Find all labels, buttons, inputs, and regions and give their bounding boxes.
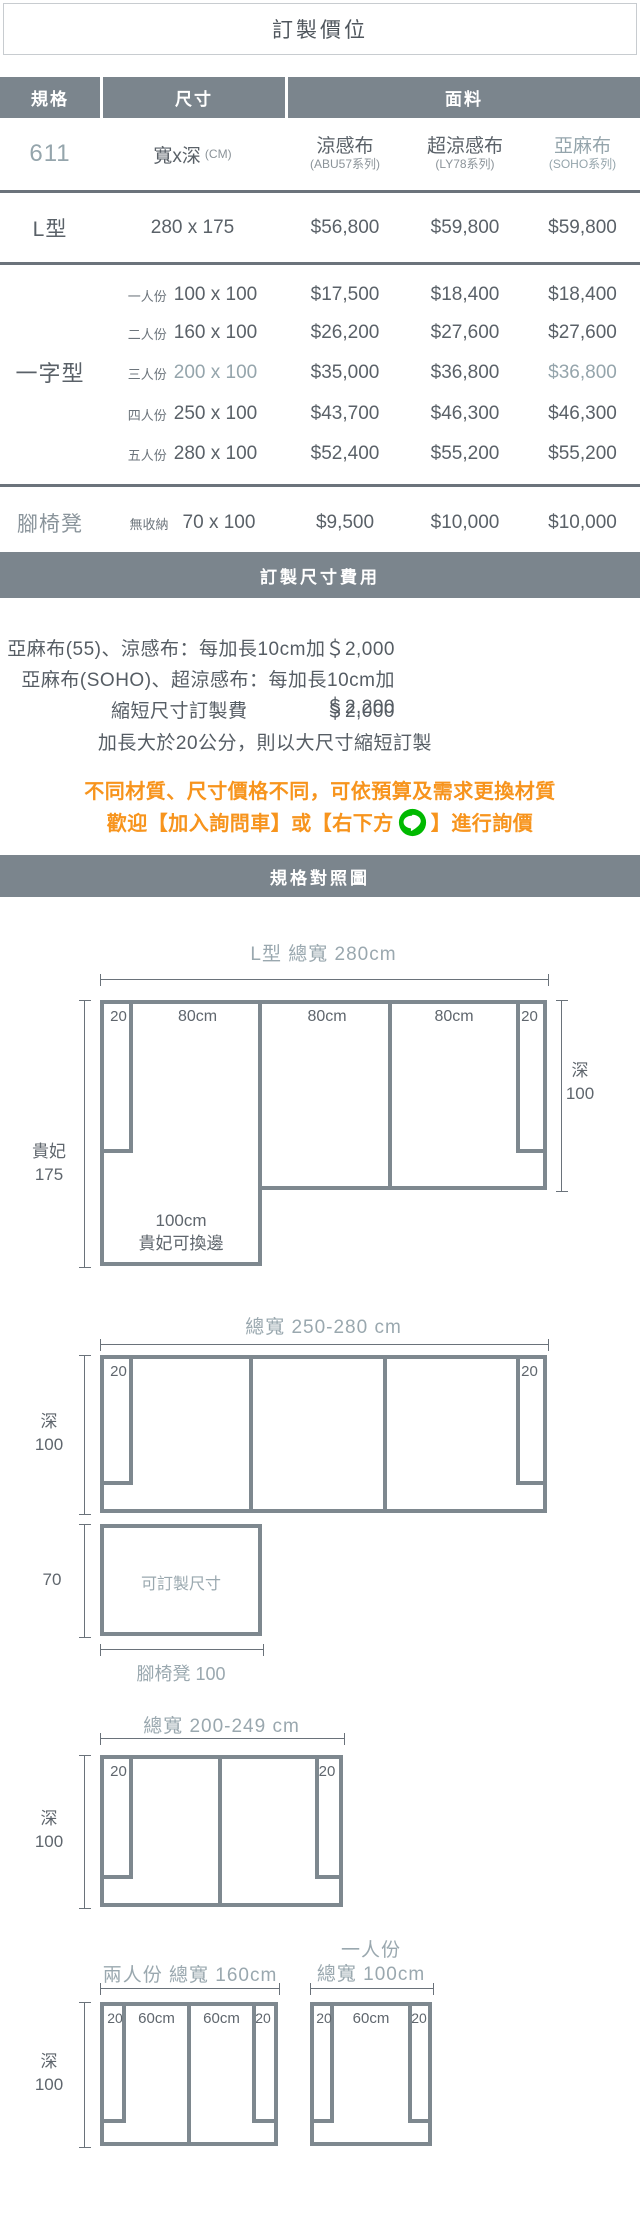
model-number: 611 xyxy=(0,118,100,190)
mid-depth-dimension xyxy=(79,1755,91,1909)
wide-depth-label: 深 xyxy=(25,1411,73,1433)
two-seat1-label: 60cm xyxy=(126,2010,187,2027)
l-right-arm-label: 20 xyxy=(516,1008,543,1025)
l-chaise-note-label: 貴妃可換邊 xyxy=(100,1233,262,1255)
price-linen: $10,000 xyxy=(525,500,640,546)
mid-right-arm-label: 20 xyxy=(315,1763,339,1780)
fee-band: 訂製尺寸費用 xyxy=(0,552,640,598)
one-seat-title-line2: 總寬 100cm xyxy=(296,1959,446,1986)
row-size: 二人份160 x 100 xyxy=(100,314,285,352)
one-seat-width-dimension xyxy=(310,1983,434,1995)
two-seat-left-arm-label: 20 xyxy=(103,2010,127,2026)
l-chaise-width-label: 100cm xyxy=(100,1210,262,1232)
price-cool: $35,000 xyxy=(285,354,405,392)
one-seat-left-arm-label: 20 xyxy=(312,2010,336,2026)
l-seat1-label: 80cm xyxy=(133,1008,262,1026)
l-seat-divider xyxy=(388,1004,392,1186)
l-seat2-label: 80cm xyxy=(266,1008,388,1026)
price-super-cool: $10,000 xyxy=(405,500,525,546)
fee-note: 加長大於20公分，則以大尺寸縮短訂製 xyxy=(0,728,530,755)
price-cool: $43,700 xyxy=(285,395,405,433)
price-super-cool: $59,800 xyxy=(405,196,525,260)
l-diagram-title: L型 總寬 280cm xyxy=(100,939,547,966)
price-cool: $9,500 xyxy=(285,500,405,546)
divider-rule xyxy=(0,484,640,487)
mid-left-arm-label: 20 xyxy=(104,1763,133,1780)
l-chaise-label: 貴妃 xyxy=(25,1141,73,1163)
header-spec: 規格 xyxy=(0,77,100,118)
wide-depth-dimension xyxy=(79,1355,91,1515)
wide-divider-2 xyxy=(383,1359,387,1509)
fee-short-price: ＄2,000 xyxy=(325,701,395,722)
two-seat-right-arm-label: 20 xyxy=(251,2010,275,2026)
table-row-stool: 腳椅凳 無收納70 x 100 $9,500 $10,000 $10,000 xyxy=(0,500,640,546)
price-cool: $56,800 xyxy=(285,196,405,260)
fabric-super-cool: 超涼感布 (LY78系列) xyxy=(405,118,525,190)
divider-rule xyxy=(0,190,640,193)
two-seat-width-dimension xyxy=(100,1983,280,1995)
row-label: 腳椅凳 xyxy=(0,500,100,546)
table-row-4p: 四人份250 x 100 $43,700 $46,300 $46,300 xyxy=(0,395,640,433)
row-size: 一人份100 x 100 xyxy=(100,276,285,314)
two-seat-depth-dimension xyxy=(79,2002,91,2148)
price-super-cool: $46,300 xyxy=(405,395,525,433)
price-super-cool: $36,800 xyxy=(405,354,525,392)
row-size: 五人份280 x 100 xyxy=(100,435,285,473)
divider-rule xyxy=(0,262,640,265)
table-row-2p: 二人份160 x 100 $26,200 $27,600 $27,600 xyxy=(0,314,640,352)
price-linen: $27,600 xyxy=(525,314,640,352)
l-chaise-depth-value: 175 xyxy=(25,1164,73,1186)
two-seat-depth-label: 深 xyxy=(25,2051,73,2073)
row-size: 無收納70 x 100 xyxy=(100,500,285,546)
l-depth-label: 深 xyxy=(558,1060,602,1082)
fee-line-1: 亞麻布(55)、涼感布：每加長10cm加＄2,000 xyxy=(0,634,395,661)
price-super-cool: $18,400 xyxy=(405,276,525,314)
wide-width-dimension xyxy=(100,1339,549,1351)
custom-pricing-page: 訂製價位 規格 尺寸 面料 611 寬x深 (CM) 涼感布 (ABU57系列)… xyxy=(0,0,640,2236)
row-size: 三人份200 x 100 xyxy=(100,354,285,392)
stool-width-label: 腳椅凳 100 xyxy=(88,1660,274,1686)
price-linen: $46,300 xyxy=(525,395,640,433)
l-left-arm-label: 20 xyxy=(104,1008,133,1025)
wide-divider-1 xyxy=(249,1359,253,1509)
fee-line-3: 縮短尺寸訂製費＄2,000 xyxy=(0,696,395,723)
l-right-armrest xyxy=(516,1004,543,1153)
l-chaise-depth-dimension xyxy=(79,1000,91,1268)
stool-depth-value: 70 xyxy=(30,1569,74,1591)
stool-custom-label: 可訂製尺寸 xyxy=(100,1570,262,1594)
mid-width-dimension xyxy=(100,1733,345,1745)
one-seat-label: 60cm xyxy=(334,2010,408,2027)
l-depth-value: 100 xyxy=(558,1083,602,1105)
mid-depth-label: 深 xyxy=(25,1808,73,1830)
page-title: 訂製價位 xyxy=(272,14,368,44)
size-unit: 寬x深 (CM) xyxy=(100,118,285,190)
mid-divider xyxy=(218,1759,222,1903)
one-seat-right-arm-label: 20 xyxy=(407,2010,431,2026)
stool-width-dimension xyxy=(100,1644,264,1656)
row-size: 四人份250 x 100 xyxy=(100,395,285,433)
fabric-cool: 涼感布 (ABU57系列) xyxy=(285,118,405,190)
price-linen: $36,800 xyxy=(525,354,640,392)
price-linen: $59,800 xyxy=(525,196,640,260)
table-row-1p: 一人份100 x 100 $17,500 $18,400 $18,400 xyxy=(0,276,640,314)
wide-right-arm-label: 20 xyxy=(516,1363,543,1380)
l-left-armrest xyxy=(104,1004,133,1153)
stool-depth-dimension xyxy=(79,1524,91,1638)
price-super-cool: $55,200 xyxy=(405,435,525,473)
page-title-box: 訂製價位 xyxy=(3,3,637,55)
row-label: L型 xyxy=(0,196,100,260)
l-seat3-label: 80cm xyxy=(392,1008,516,1026)
table-row-l-type: L型 280 x 175 $56,800 $59,800 $59,800 xyxy=(0,196,640,260)
price-cool: $17,500 xyxy=(285,276,405,314)
header-size: 尺寸 xyxy=(103,77,285,118)
table-row-5p: 五人份280 x 100 $52,400 $55,200 $55,200 xyxy=(0,435,640,473)
compare-band: 規格對照圖 xyxy=(0,855,640,897)
price-cool: $52,400 xyxy=(285,435,405,473)
two-seat2-label: 60cm xyxy=(191,2010,252,2027)
price-cool: $26,200 xyxy=(285,314,405,352)
promo-line-1: 不同材質、尺寸價格不同，可依預算及需求更換材質 xyxy=(0,775,640,804)
wide-sofa-outline xyxy=(100,1355,547,1513)
price-linen: $55,200 xyxy=(525,435,640,473)
fee-short-label: 縮短尺寸訂製費 xyxy=(111,701,248,722)
two-seat-depth-value: 100 xyxy=(25,2074,73,2096)
price-super-cool: $27,600 xyxy=(405,314,525,352)
table-row-3p-highlight: 三人份200 x 100 $35,000 $36,800 $36,800 xyxy=(0,354,640,392)
one-seat-title-line1: 一人份 xyxy=(296,1935,446,1962)
l-width-dimension xyxy=(100,974,549,986)
row-size: 280 x 175 xyxy=(100,196,285,260)
promo-line-2: 歡迎【加入詢問車】或【右下方】進行詢價 xyxy=(0,807,640,837)
wide-left-arm-label: 20 xyxy=(104,1363,133,1380)
line-app-icon xyxy=(398,808,427,837)
table-header-band: 規格 尺寸 面料 xyxy=(0,77,640,118)
header-fabric: 面料 xyxy=(288,77,640,118)
fabric-linen: 亞麻布 (SOHO系列) xyxy=(525,118,640,190)
mid-depth-value: 100 xyxy=(25,1831,73,1853)
price-linen: $18,400 xyxy=(525,276,640,314)
fabric-header-row: 611 寬x深 (CM) 涼感布 (ABU57系列) 超涼感布 (LY78系列)… xyxy=(0,118,640,190)
wide-diagram-title: 總寬 250-280 cm xyxy=(100,1312,547,1339)
wide-depth-value: 100 xyxy=(25,1434,73,1456)
